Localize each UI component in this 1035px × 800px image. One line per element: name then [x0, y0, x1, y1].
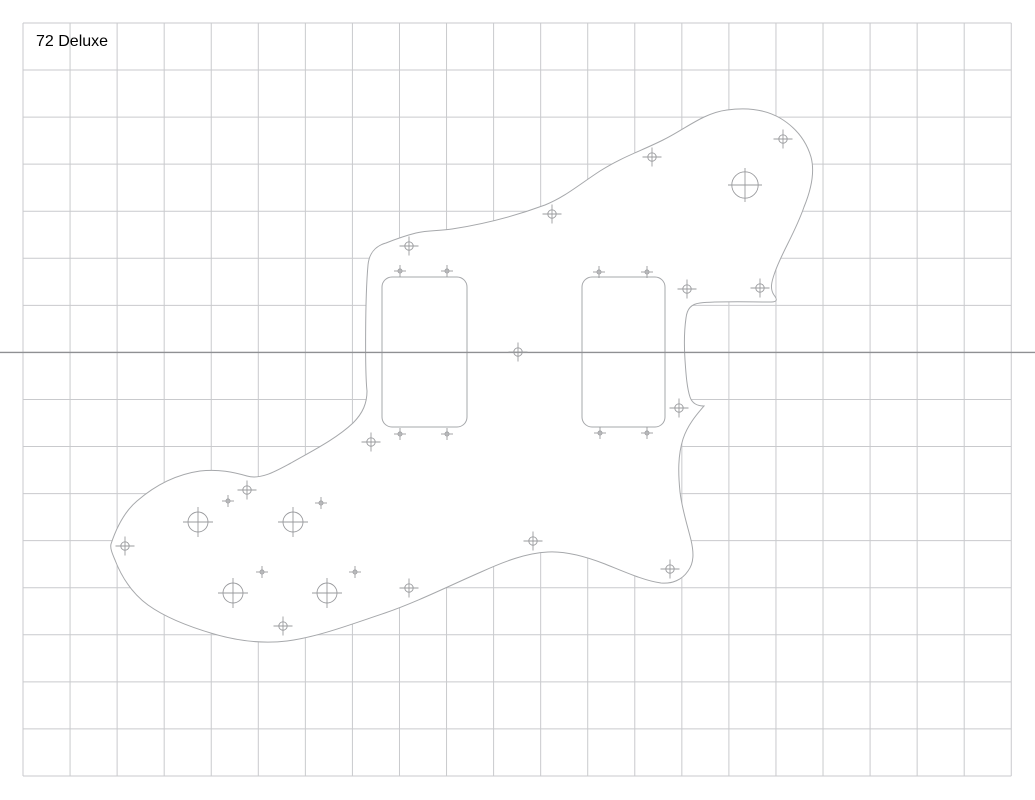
drawing-title: 72 Deluxe: [36, 33, 108, 51]
drawing-svg: [0, 0, 1035, 800]
cad-canvas: 72 Deluxe: [0, 0, 1035, 800]
